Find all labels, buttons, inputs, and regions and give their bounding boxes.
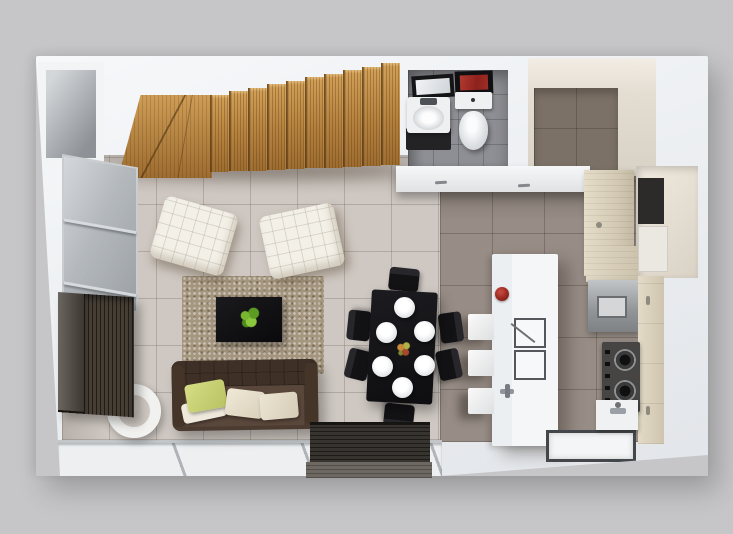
plate [394,297,415,318]
stair-tread [210,95,229,172]
stair-tread [286,81,305,169]
entry-niche-opening [46,70,96,158]
sideboard-cabinet [58,292,84,414]
plate [372,356,393,377]
door-frame-bar [64,219,136,235]
floor-plan-render [0,0,733,534]
sink-faucet [420,98,437,105]
stair-tread [324,74,343,168]
dining-chair [388,266,420,292]
glass-sliding-door [62,154,138,313]
toilet-tank [455,92,492,109]
stair-tread [381,63,400,165]
stair-tread [362,67,381,166]
sink-basin [413,106,444,130]
cooktop-knob [605,362,610,366]
cooktop-knob [605,386,610,390]
sideboard [58,292,134,417]
cooktop-knob [605,350,610,354]
wood-counter [586,246,638,282]
recessed-floor-tile [546,430,636,462]
red-wall-art [460,75,489,91]
stair-tread [229,91,248,171]
wall-cabinet-strip [638,276,664,444]
plate [392,377,413,398]
toilet-bowl [459,111,488,150]
dining-chair [346,309,372,341]
bar-stool [468,350,494,376]
cabinet-handle [646,296,650,305]
entry-platform-step [306,462,432,478]
dressing-room-tiled-wall [534,88,618,172]
island-faucet [500,384,514,398]
entry-wood-platform [310,422,430,464]
dining-chair [438,311,465,344]
dark-appliance [638,178,664,224]
sideboard-slats [84,294,134,417]
sink-panel [514,318,546,348]
dressing-room [528,58,656,176]
cabinet-handle [596,222,602,228]
island-sink [514,318,546,382]
stair-tread [305,77,324,168]
counter-handle [518,184,530,188]
red-bowl [495,287,509,301]
counter-handle [435,181,447,185]
throw-pillow-cream [259,391,299,420]
cooktop-knob [605,374,610,378]
burner [614,380,636,402]
potted-plant [238,306,262,330]
kitchen-faucet [610,402,626,416]
kitchen-back-counter [396,166,590,192]
stair-tread [248,88,267,171]
stainless-appliance [588,280,640,332]
bathroom-mirror [411,74,455,100]
sink-panel [514,350,546,380]
plate [376,322,397,343]
stair-tread [267,84,286,170]
mirror-glass [416,78,451,95]
utility-niche [636,166,698,278]
utility-cabinet [638,226,668,272]
burner [614,349,636,371]
bar-stool [468,388,494,414]
appliance-door [597,296,627,318]
stair-tread [343,70,362,167]
sofa-armrest [304,363,318,425]
red-wall-art-frame [455,70,494,94]
bar-stool [468,314,494,340]
flower-centerpiece [396,341,412,357]
cabinet-handle [646,406,650,415]
plate [414,355,435,376]
plate [414,321,435,342]
